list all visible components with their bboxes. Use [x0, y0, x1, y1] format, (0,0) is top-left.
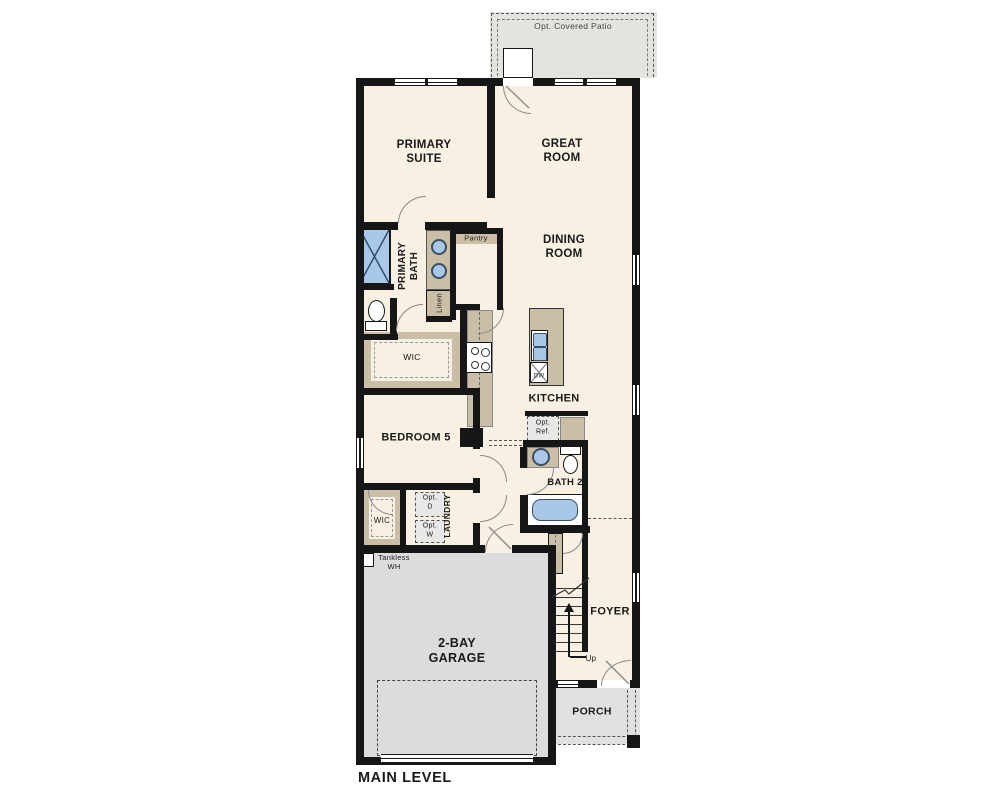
label-linen: Linen — [434, 293, 443, 313]
plan-title: MAIN LEVEL — [358, 770, 452, 786]
label-great-room: GREAT ROOM — [542, 137, 583, 165]
shower-x-icon — [360, 230, 389, 283]
wall — [356, 545, 485, 553]
wall — [533, 78, 555, 86]
label-patio: Opt. Covered Patio — [534, 21, 612, 31]
label-tankless-wh: Tankless WH — [378, 553, 410, 571]
wall — [390, 298, 397, 338]
label-dishwasher: DW — [534, 373, 545, 380]
window — [632, 385, 640, 415]
wall — [460, 304, 467, 394]
wall — [356, 468, 364, 765]
label-primary-suite: PRIMARY SUITE — [397, 138, 452, 166]
label-bedroom5: BEDROOM 5 — [381, 431, 450, 444]
wall — [473, 483, 480, 493]
wall — [457, 78, 503, 86]
label-bath2: BATH 2 — [547, 477, 582, 489]
island-sink-basin — [533, 347, 547, 361]
porch-post — [627, 735, 640, 748]
stairs-up-stem-foot — [570, 656, 586, 658]
wall — [356, 388, 480, 395]
bath2-sink — [532, 448, 550, 466]
foyer-ceiling-break-dashed — [588, 518, 632, 522]
wall — [548, 545, 556, 765]
wall — [630, 680, 640, 688]
vanity-sink-2 — [431, 263, 447, 279]
wall — [548, 680, 558, 688]
burner — [471, 347, 479, 355]
vanity-sink-1 — [431, 239, 447, 255]
wall — [460, 428, 483, 447]
wall — [632, 602, 640, 680]
label-dining-room: DINING ROOM — [543, 233, 585, 261]
window — [632, 255, 640, 285]
wall — [400, 490, 406, 545]
window — [356, 438, 364, 468]
label-opt-ref: Opt. Ref. — [536, 419, 550, 436]
hall-ceiling-break-dashed — [489, 440, 522, 446]
label-opt-dryer: Opt. D — [423, 494, 437, 511]
wall — [356, 222, 398, 230]
wall — [632, 78, 640, 255]
toilet-primary-tank — [365, 321, 387, 331]
label-wic-secondary: WIC — [374, 516, 390, 526]
wall — [582, 441, 588, 652]
label-up: Up — [586, 654, 597, 664]
label-laundry: LAUNDRY — [442, 494, 452, 537]
window — [395, 78, 425, 86]
wall — [426, 316, 452, 322]
kitchen-counter-right — [560, 417, 585, 441]
wall — [497, 234, 503, 310]
wall — [520, 447, 527, 468]
toilet-bath2-tank — [560, 446, 581, 455]
label-garage: 2-BAY GARAGE — [429, 636, 486, 667]
wall — [356, 334, 398, 340]
label-primary-bath: PRIMARY BATH — [397, 242, 421, 290]
wall — [632, 415, 640, 573]
wall — [632, 285, 640, 385]
label-kitchen: KITCHEN — [529, 392, 580, 405]
window — [428, 78, 457, 86]
label-wic-primary: WIC — [403, 352, 420, 362]
island-sink-unit — [531, 330, 548, 361]
window — [558, 680, 578, 688]
window — [587, 78, 616, 86]
window — [632, 573, 640, 602]
label-porch: PORCH — [572, 706, 611, 719]
toilet-primary-bowl — [368, 300, 385, 322]
rear-door-opening — [503, 78, 533, 86]
label-foyer: FOYER — [590, 605, 629, 618]
stove — [466, 342, 492, 373]
burner — [481, 362, 490, 371]
wall — [523, 440, 588, 447]
label-opt-washer: Opt. W — [423, 522, 437, 539]
wall — [487, 86, 495, 198]
wall — [473, 523, 480, 545]
garage-door — [381, 754, 533, 763]
wall — [578, 680, 597, 688]
patio-door-landing — [503, 48, 533, 78]
label-pantry: Pantry — [464, 233, 487, 242]
wall — [520, 495, 527, 526]
burner — [481, 348, 490, 357]
wall — [356, 284, 394, 290]
wall — [356, 78, 364, 438]
wall — [525, 411, 588, 416]
garage-apron-dashed — [377, 680, 537, 756]
burner — [471, 361, 479, 369]
toilet-bath2-bowl — [563, 455, 578, 474]
floor-plan: Opt. Covered Patio — [0, 0, 1000, 800]
bathtub — [532, 499, 578, 521]
wall — [356, 483, 480, 490]
wall — [520, 526, 590, 533]
island-sink-basin — [533, 333, 547, 347]
window — [555, 78, 583, 86]
stairs-up-stem — [568, 611, 570, 657]
